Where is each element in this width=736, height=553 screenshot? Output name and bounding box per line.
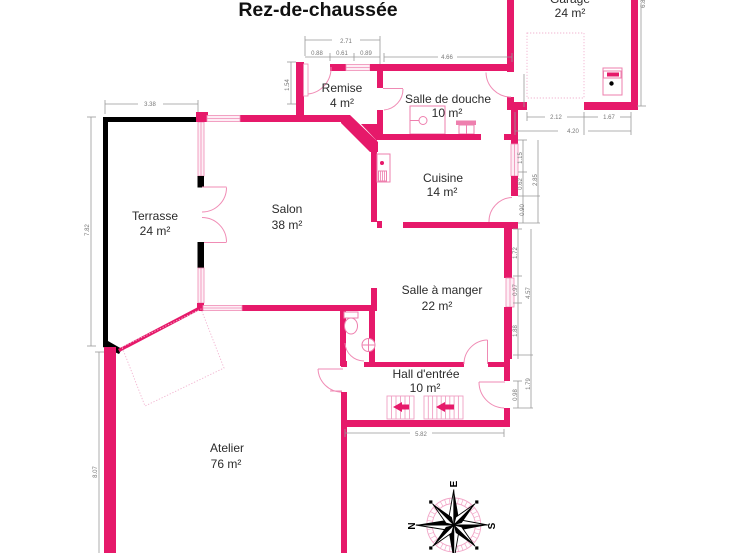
svg-text:0.89: 0.89 [360,51,372,57]
svg-text:0.88: 0.88 [311,51,323,57]
svg-text:Salle à manger: Salle à manger [402,283,483,297]
svg-text:1.54: 1.54 [285,79,291,91]
svg-text:1.72: 1.72 [513,247,519,259]
svg-text:1.67: 1.67 [603,115,615,121]
svg-text:1.79: 1.79 [526,378,532,390]
svg-text:4.57: 4.57 [526,287,532,299]
svg-text:Terrasse: Terrasse [132,209,178,223]
svg-text:24 m²: 24 m² [140,224,171,238]
svg-text:E: E [449,480,460,487]
svg-text:Salle de douche: Salle de douche [405,92,491,106]
svg-text:Cuisine: Cuisine [423,171,463,185]
svg-text:Salon: Salon [272,202,303,216]
svg-text:3.38: 3.38 [144,102,156,108]
svg-text:0.98: 0.98 [513,389,519,401]
svg-text:10 m²: 10 m² [432,106,463,120]
svg-text:6.85: 6.85 [641,0,647,8]
svg-text:4 m²: 4 m² [330,96,354,110]
svg-text:76 m²: 76 m² [211,457,242,471]
svg-text:S: S [487,522,498,529]
svg-text:14 m²: 14 m² [427,185,458,199]
svg-text:0.97: 0.97 [513,284,519,296]
svg-text:Remise: Remise [322,81,363,95]
svg-text:Atelier: Atelier [210,441,244,455]
svg-text:24 m²: 24 m² [555,6,586,20]
svg-text:2.71: 2.71 [340,39,352,45]
svg-text:2.12: 2.12 [550,115,562,121]
svg-text:38 m²: 38 m² [272,218,303,232]
svg-text:0.90: 0.90 [520,204,526,216]
svg-text:22 m²: 22 m² [422,299,453,313]
svg-text:4.20: 4.20 [567,129,579,135]
svg-text:7.82: 7.82 [85,224,91,236]
svg-text:0.62: 0.62 [518,178,524,190]
svg-text:1.15: 1.15 [518,152,524,164]
svg-text:2.85: 2.85 [533,174,539,186]
svg-text:10 m²: 10 m² [410,381,441,395]
svg-text:4.66: 4.66 [441,55,453,61]
svg-text:8.07: 8.07 [93,466,99,478]
svg-text:N: N [407,522,418,529]
svg-text:1.88: 1.88 [513,325,519,337]
svg-text:5.82: 5.82 [415,432,427,438]
svg-text:0.61: 0.61 [336,51,348,57]
svg-text:Rez-de-chaussée: Rez-de-chaussée [238,0,397,21]
svg-text:Hall d'entrée: Hall d'entrée [393,367,460,381]
